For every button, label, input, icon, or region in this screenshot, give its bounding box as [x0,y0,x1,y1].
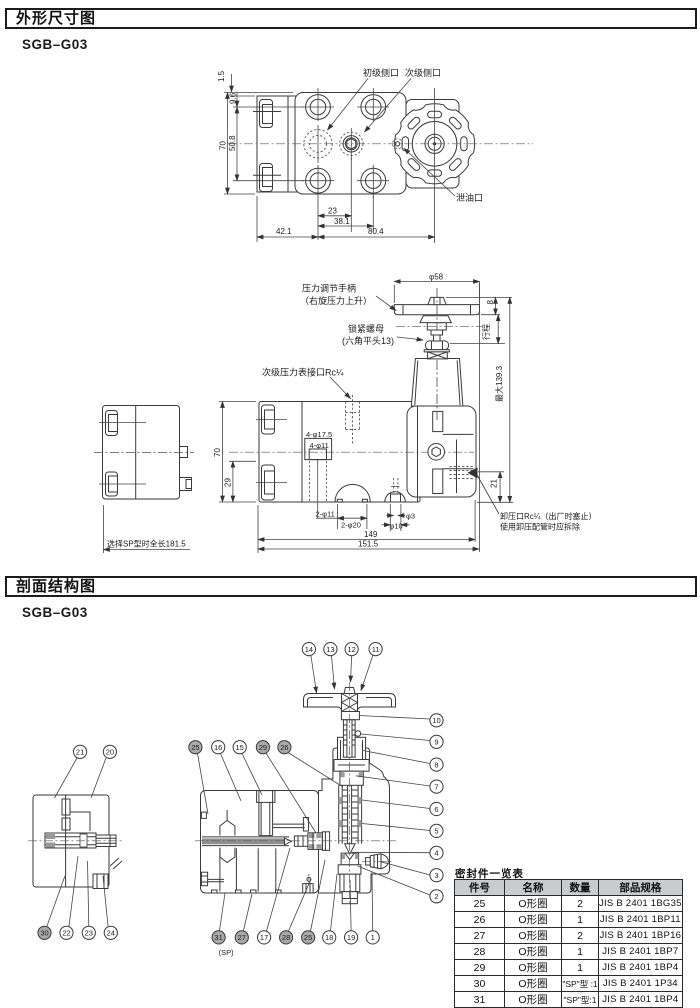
svg-text:18: 18 [325,933,333,942]
svg-text:15: 15 [236,743,244,752]
svg-text:3: 3 [434,871,438,880]
svg-text:151.5: 151.5 [358,540,379,549]
svg-text:25: 25 [304,933,312,942]
svg-text:使用卸压配管时应拆除: 使用卸压配管时应拆除 [500,522,580,532]
svg-text:次级侧口: 次级侧口 [405,67,441,78]
svg-text:17: 17 [260,933,268,942]
svg-text:次级压力表接口Rc¼: 次级压力表接口Rc¼ [262,367,344,378]
svg-text:卸压口Rc¼（出厂时塞止）: 卸压口Rc¼（出厂时塞止） [500,511,596,521]
svg-text:20: 20 [106,748,114,757]
svg-text:11: 11 [372,645,380,654]
svg-text:2-φ20: 2-φ20 [341,521,361,530]
svg-text:最大139.3: 最大139.3 [494,365,504,402]
svg-text:13: 13 [326,645,334,654]
svg-text:29: 29 [224,478,233,487]
svg-text:(六角平头13): (六角平头13) [342,335,394,346]
svg-text:28: 28 [282,933,290,942]
svg-text:16: 16 [214,743,222,752]
svg-text:21: 21 [490,479,499,488]
svg-text:7: 7 [434,782,438,791]
svg-text:26: 26 [280,743,288,752]
svg-text:30: 30 [40,929,48,938]
svg-text:压力调节手柄: 压力调节手柄 [302,283,356,294]
svg-text:80.4: 80.4 [368,227,384,236]
svg-text:21: 21 [76,748,84,757]
svg-text:25: 25 [191,743,199,752]
svg-text:行程: 行程 [481,324,491,340]
svg-text:19: 19 [347,933,355,942]
svg-text:70: 70 [219,141,228,150]
svg-text:29: 29 [259,743,267,752]
svg-text:70: 70 [213,448,222,457]
svg-text:锁紧螺母: 锁紧螺母 [348,323,384,334]
svg-text:23: 23 [85,929,93,938]
svg-text:4: 4 [434,849,438,858]
svg-text:14: 14 [305,645,313,654]
svg-text:38.1: 38.1 [334,217,350,226]
svg-text:φ3: φ3 [406,512,415,521]
svg-text:(SP): (SP) [219,948,235,957]
svg-text:8: 8 [486,300,495,305]
svg-text:4-φ17.5: 4-φ17.5 [306,430,332,439]
svg-text:2-φ11: 2-φ11 [316,510,335,519]
svg-text:初级侧口: 初级侧口 [363,67,399,78]
svg-text:8: 8 [434,760,438,769]
svg-text:选择SP型时全长181.5: 选择SP型时全长181.5 [107,539,186,549]
svg-text:泄油口: 泄油口 [456,192,483,203]
svg-text:1: 1 [371,933,375,942]
svg-text:（右旋压力上升）: （右旋压力上升） [300,295,372,306]
svg-text:9.6: 9.6 [229,92,238,104]
svg-text:31: 31 [214,933,222,942]
svg-text:6: 6 [434,805,438,814]
svg-text:1.5: 1.5 [217,70,226,82]
svg-text:2: 2 [434,892,438,901]
svg-text:10: 10 [432,716,440,725]
svg-text:φ10: φ10 [390,522,403,531]
svg-text:φ58: φ58 [429,273,444,282]
svg-text:23: 23 [328,207,337,216]
svg-text:149: 149 [364,530,378,539]
svg-text:5: 5 [434,827,438,836]
svg-text:12: 12 [347,645,355,654]
svg-text:24: 24 [107,929,115,938]
svg-text:9: 9 [434,738,438,747]
svg-text:22: 22 [62,929,70,938]
svg-text:27: 27 [238,933,246,942]
svg-text:50.8: 50.8 [228,135,237,151]
svg-text:42.1: 42.1 [276,227,292,236]
